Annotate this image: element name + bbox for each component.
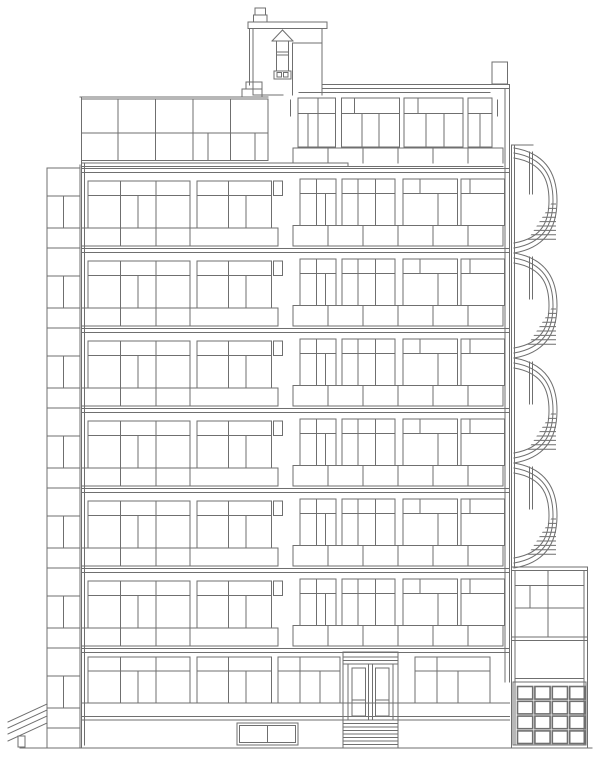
stair-loop: [514, 463, 557, 568]
roof-terrace: [299, 85, 510, 93]
stair-treads: [526, 414, 556, 449]
floor-module: [82, 249, 510, 327]
basement-window: [237, 723, 298, 745]
ground-floor: [82, 649, 510, 721]
penthouse: [242, 22, 327, 97]
stair-loop: [514, 148, 557, 253]
elevation-drawing: [0, 0, 600, 759]
building-elevation-svg: [0, 0, 600, 759]
floor-module: [82, 409, 510, 487]
stair-treads: [526, 309, 556, 344]
entrance-door: [343, 652, 398, 748]
garage-door: [513, 682, 586, 745]
spiral-staircase: [512, 145, 558, 568]
stair-loop: [514, 253, 557, 358]
attic-floor: [82, 98, 504, 167]
floor-module: [82, 569, 510, 647]
brick-wall-strip: [47, 165, 80, 748]
vent-tower: [272, 30, 293, 79]
typical-floors: [82, 169, 510, 647]
floor-module: [82, 329, 510, 407]
roof-chimney: [492, 62, 508, 84]
stair-loop: [514, 358, 557, 463]
stair-treads: [526, 519, 556, 554]
penthouse-chimney: [254, 8, 268, 22]
floor-module: [82, 169, 510, 247]
stair-treads: [526, 204, 556, 239]
floor-module: [82, 489, 510, 567]
entrance-ramp-railing: [8, 704, 47, 747]
